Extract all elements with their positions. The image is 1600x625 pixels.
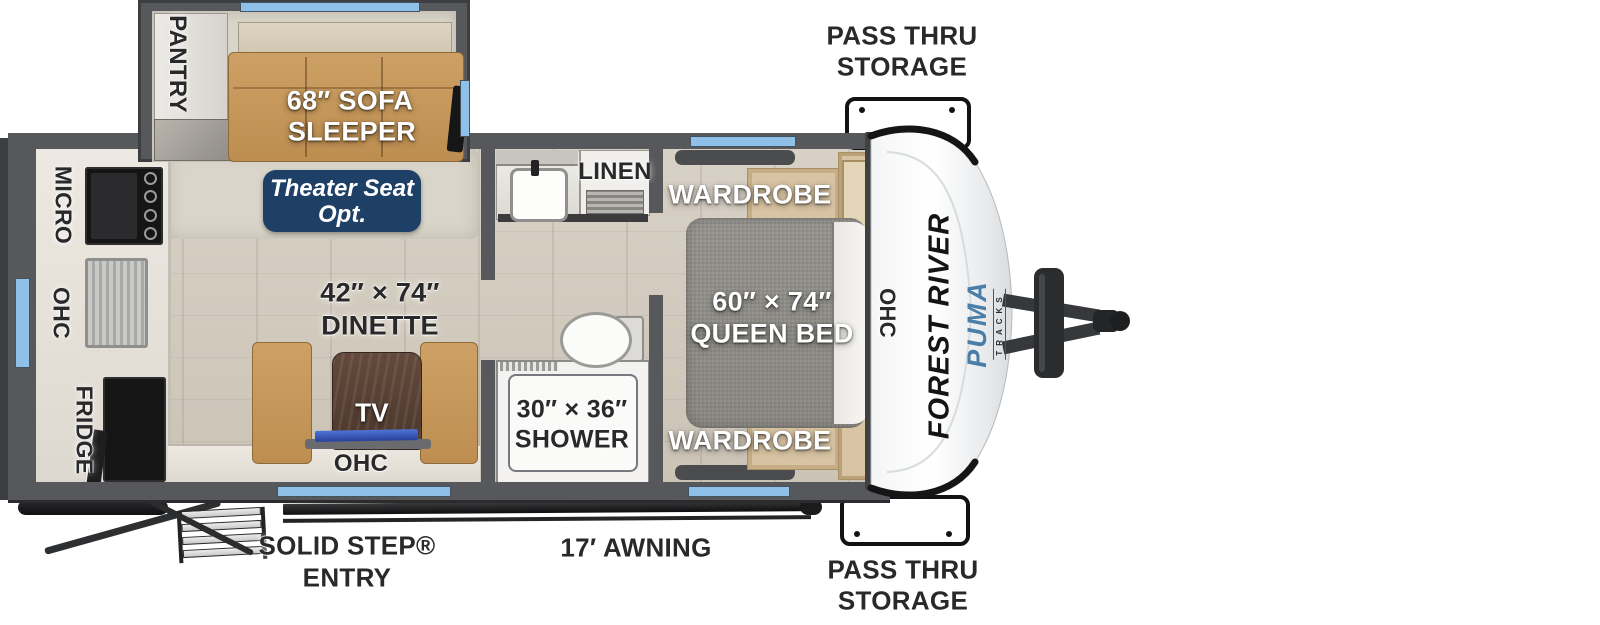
awning-roller-rail	[283, 515, 811, 523]
tongue-jack	[1034, 268, 1064, 378]
wardrobe-bottom-label: WARDROBE	[669, 426, 832, 457]
top-wall-rear-segment	[8, 133, 144, 149]
tv-label: TV	[355, 398, 389, 429]
bedroom-shade-top	[675, 150, 795, 165]
bathroom-wall-right-lower	[649, 295, 663, 484]
living-ohc-label: OHC	[334, 450, 388, 478]
pass-thru-storage-bottom-label: STORAGE	[838, 586, 968, 617]
bath-faucet	[531, 160, 539, 176]
awning-label: 17′ AWNING	[560, 533, 711, 564]
rv-floorplan-diagram: PASS THRU STORAGE PASS THRU STORAGE SOLI…	[0, 0, 1600, 625]
window	[460, 80, 470, 137]
bathroom-wall-left-lower	[481, 360, 495, 484]
solid-step-entry-label: SOLID STEP®	[258, 531, 435, 562]
pass-thru-storage-top-label: PASS THRU	[826, 21, 977, 52]
kitchen-ohc-label: OHC	[48, 287, 75, 339]
tracks-logo-text: TRACKS	[993, 288, 1006, 359]
pass-thru-storage-top-label: STORAGE	[837, 52, 967, 83]
dinette-tv	[315, 429, 418, 442]
sofa-label: 68″ SOFA	[287, 86, 413, 117]
microwave-label: MICRO	[50, 166, 77, 244]
range-knobs	[143, 172, 157, 240]
theater-seat-option-badge: Theater Seat Opt.	[263, 170, 421, 232]
linen-label: LINEN	[578, 158, 652, 186]
tongue-jack-highlight	[1039, 274, 1045, 372]
range-cooktop	[85, 167, 163, 245]
dinette-label: DINETTE	[321, 311, 439, 342]
bathroom-wall-left	[481, 147, 495, 280]
shower-size-label: 30″ × 36″	[517, 396, 628, 425]
queen-bed-label: QUEEN BED	[690, 319, 853, 350]
solid-step-entry-label: ENTRY	[303, 563, 392, 594]
window	[15, 278, 30, 368]
hitch-ball-socket	[1110, 311, 1130, 331]
latch-dot	[854, 531, 860, 537]
wardrobe-top-label: WARDROBE	[669, 180, 832, 211]
pass-thru-storage-bottom-label: PASS THRU	[827, 555, 978, 586]
refrigerator	[103, 377, 166, 482]
queen-bed-size-label: 60″ × 74″	[712, 287, 831, 318]
bath-sink	[510, 168, 568, 222]
pantry-counter	[154, 119, 236, 161]
kitchen-sink	[85, 258, 148, 348]
window	[277, 486, 451, 497]
pantry-label: PANTRY	[163, 15, 191, 113]
latch-dot	[946, 531, 952, 537]
puma-logo-text: PUMA	[965, 280, 989, 368]
window	[690, 136, 796, 147]
range-door	[91, 173, 137, 239]
window	[240, 2, 420, 12]
theater-seat-option-label: Opt.	[318, 202, 366, 227]
sofa-label: SLEEPER	[288, 117, 416, 148]
linen-vent	[586, 190, 644, 214]
theater-seat-option-label: Theater Seat	[270, 176, 414, 202]
forest-river-logo-text: FOREST RIVER	[924, 213, 957, 439]
shower-label: SHOWER	[515, 426, 629, 455]
dinette-bench-left	[252, 342, 312, 464]
window	[688, 486, 790, 497]
shower-door-track	[500, 362, 558, 371]
fridge-label: FRIDGE	[71, 386, 98, 475]
toilet-bowl	[560, 312, 632, 368]
bedroom-ohc-label: OHC	[874, 288, 900, 338]
top-wall-front-segment	[464, 133, 890, 149]
dinette-size-label: 42″ × 74″	[320, 278, 439, 309]
